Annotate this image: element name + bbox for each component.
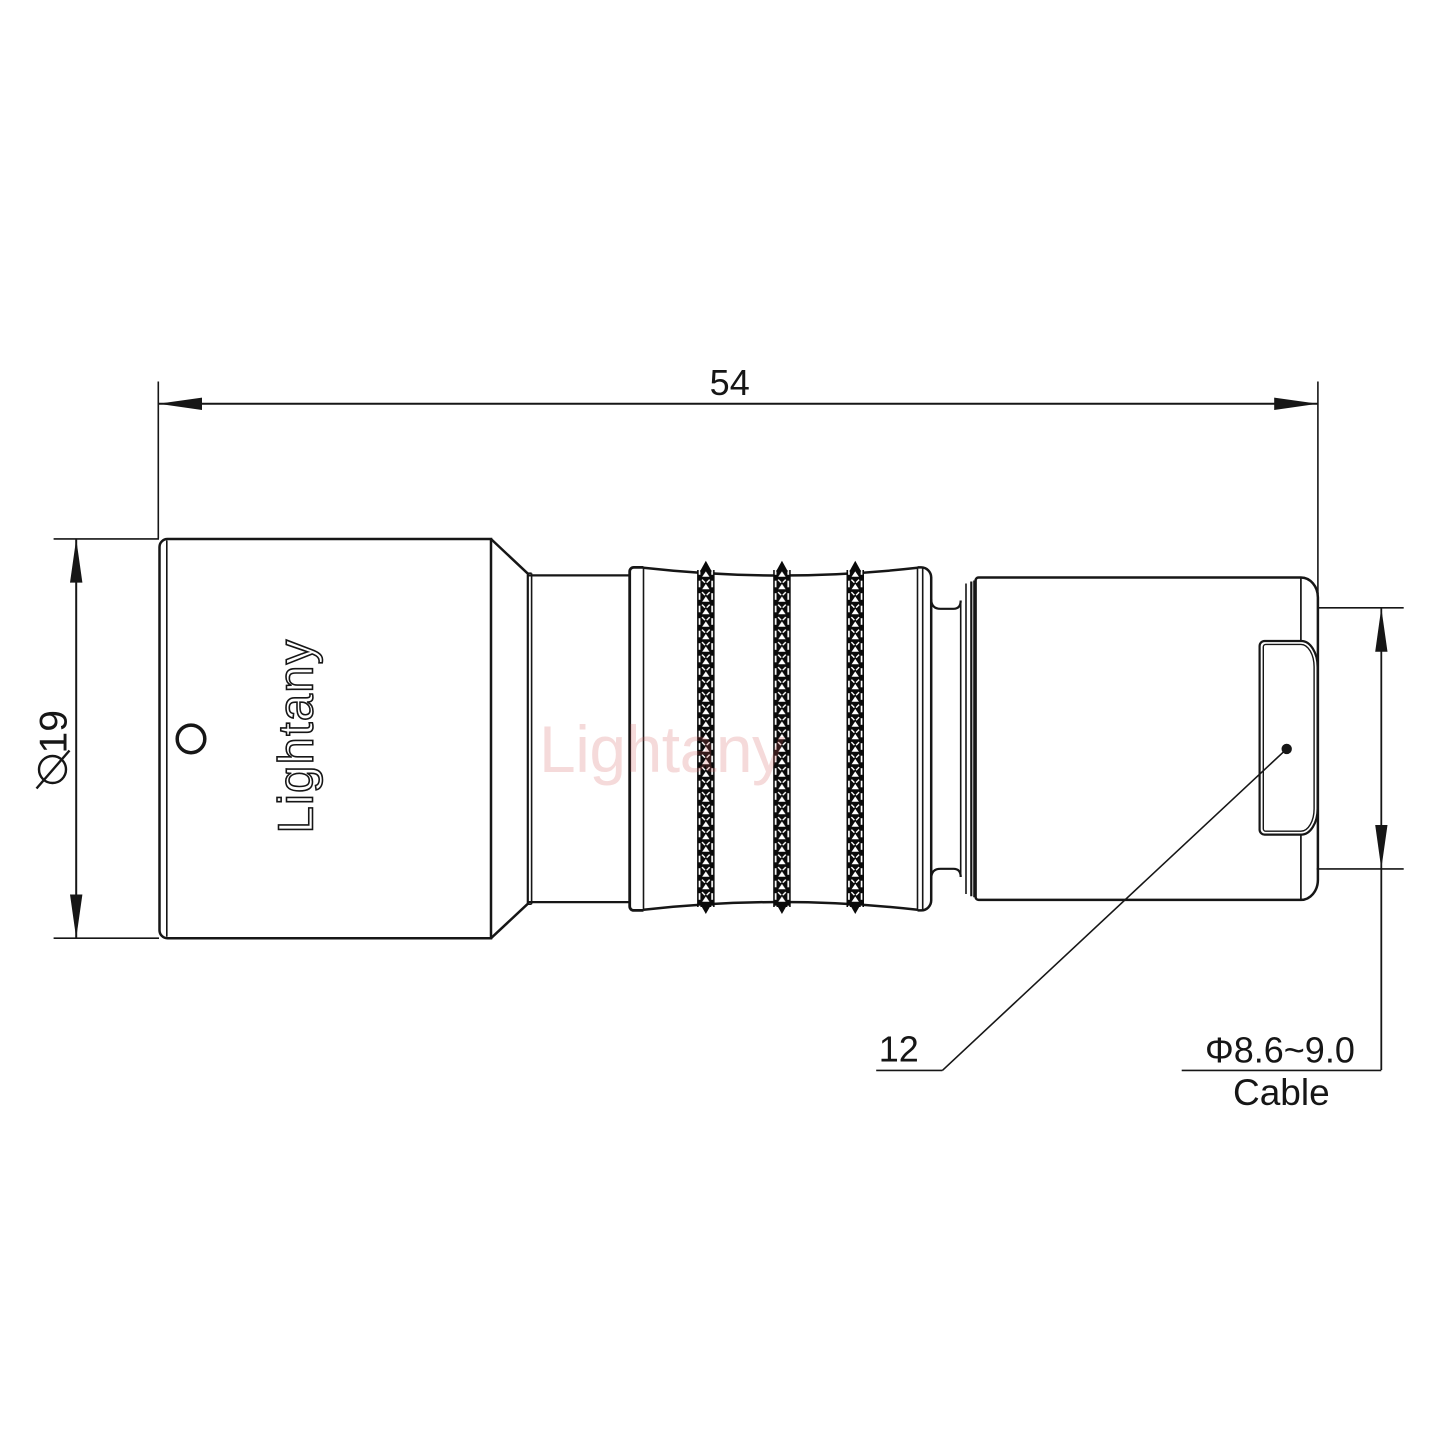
svg-text:Lightany: Lightany — [270, 639, 324, 834]
svg-text:54: 54 — [710, 362, 750, 403]
svg-text:Φ8.6~9.0: Φ8.6~9.0 — [1205, 1030, 1355, 1071]
svg-text:12: 12 — [879, 1029, 919, 1070]
svg-text:19: 19 — [33, 710, 76, 753]
svg-text:Lightany: Lightany — [539, 712, 785, 786]
svg-text:Cable: Cable — [1233, 1072, 1330, 1113]
